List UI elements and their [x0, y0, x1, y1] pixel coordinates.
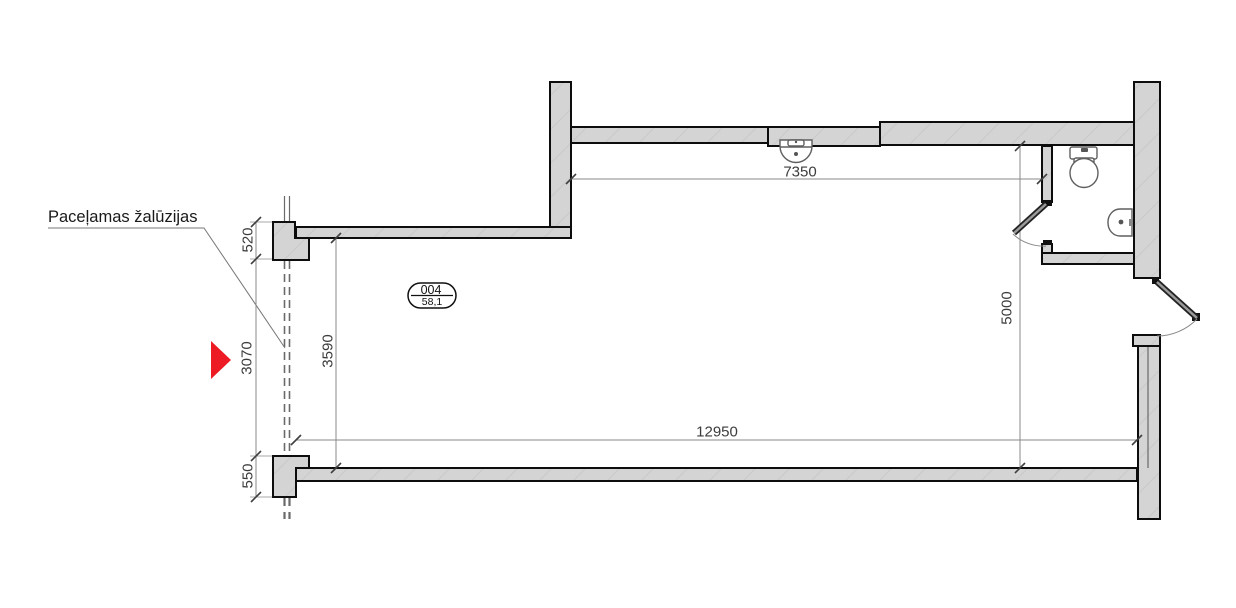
dim-top-width: 7350 — [783, 164, 816, 181]
dim-right-height: 5000 — [999, 291, 1016, 324]
wall-top-left-vertical — [550, 82, 571, 237]
bathroom-door — [1013, 200, 1052, 246]
dim-window-opening: 3070 — [239, 341, 256, 374]
wall-right-lower — [1138, 346, 1160, 519]
wall-top-a — [571, 127, 768, 143]
floor-plan-canvas: Paceļamas žalūzijas 7350 12950 5000 3590… — [0, 0, 1236, 608]
wall-bathroom-bottom — [1042, 253, 1134, 264]
room-area: 58,1 — [422, 296, 443, 308]
annotation-label: Paceļamas žalūzijas — [48, 208, 197, 226]
walls — [273, 82, 1160, 519]
dim-bottom-width: 12950 — [696, 424, 738, 441]
right-wall-door — [1152, 278, 1200, 336]
dim-pier-top: 520 — [240, 227, 257, 252]
dim-left-height: 3590 — [320, 334, 337, 367]
room-number: 004 — [421, 283, 442, 297]
wall-right-upper — [1134, 82, 1160, 278]
toilet-icon — [1070, 147, 1098, 188]
hand-sink-icon — [1108, 209, 1133, 236]
washbasin-icon — [780, 140, 812, 163]
room-tag: 004 58,1 — [408, 283, 456, 308]
drawing-sheet: Paceļamas žalūzijas 7350 12950 5000 3590… — [0, 0, 1236, 608]
wall-right-jamb — [1133, 335, 1160, 346]
wall-top-c — [880, 122, 1136, 145]
wall-bottom — [296, 468, 1137, 481]
wall-bathroom-stub — [1042, 244, 1052, 253]
door-swing-arc — [1157, 319, 1197, 336]
section-arrow-marker — [211, 341, 231, 379]
dim-pier-bottom: 550 — [240, 463, 257, 488]
